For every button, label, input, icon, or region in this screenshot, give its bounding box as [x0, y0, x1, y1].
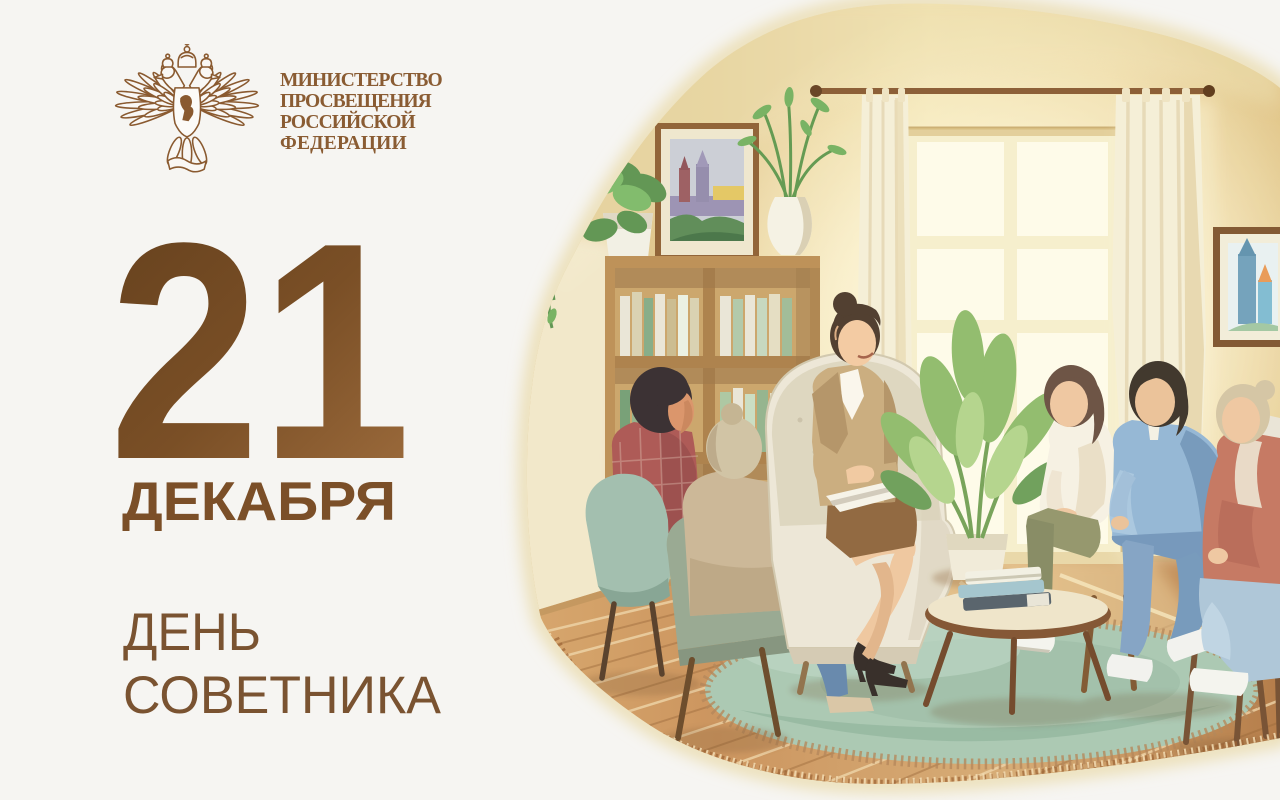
- svg-text:РОССИЙСКОЙ: РОССИЙСКОЙ: [280, 111, 416, 133]
- svg-text:ДЕКАБРЯ: ДЕКАБРЯ: [122, 470, 396, 532]
- svg-text:ФЕДЕРАЦИИ: ФЕДЕРАЦИИ: [280, 133, 407, 154]
- svg-text:СОВЕТНИКА: СОВЕТНИКА: [123, 666, 442, 725]
- svg-text:ПРОСВЕЩЕНИЯ: ПРОСВЕЩЕНИЯ: [280, 91, 432, 112]
- svg-text:МИНИСТЕРСТВО: МИНИСТЕРСТВО: [280, 70, 443, 91]
- svg-text:ДЕНЬ: ДЕНЬ: [123, 603, 261, 662]
